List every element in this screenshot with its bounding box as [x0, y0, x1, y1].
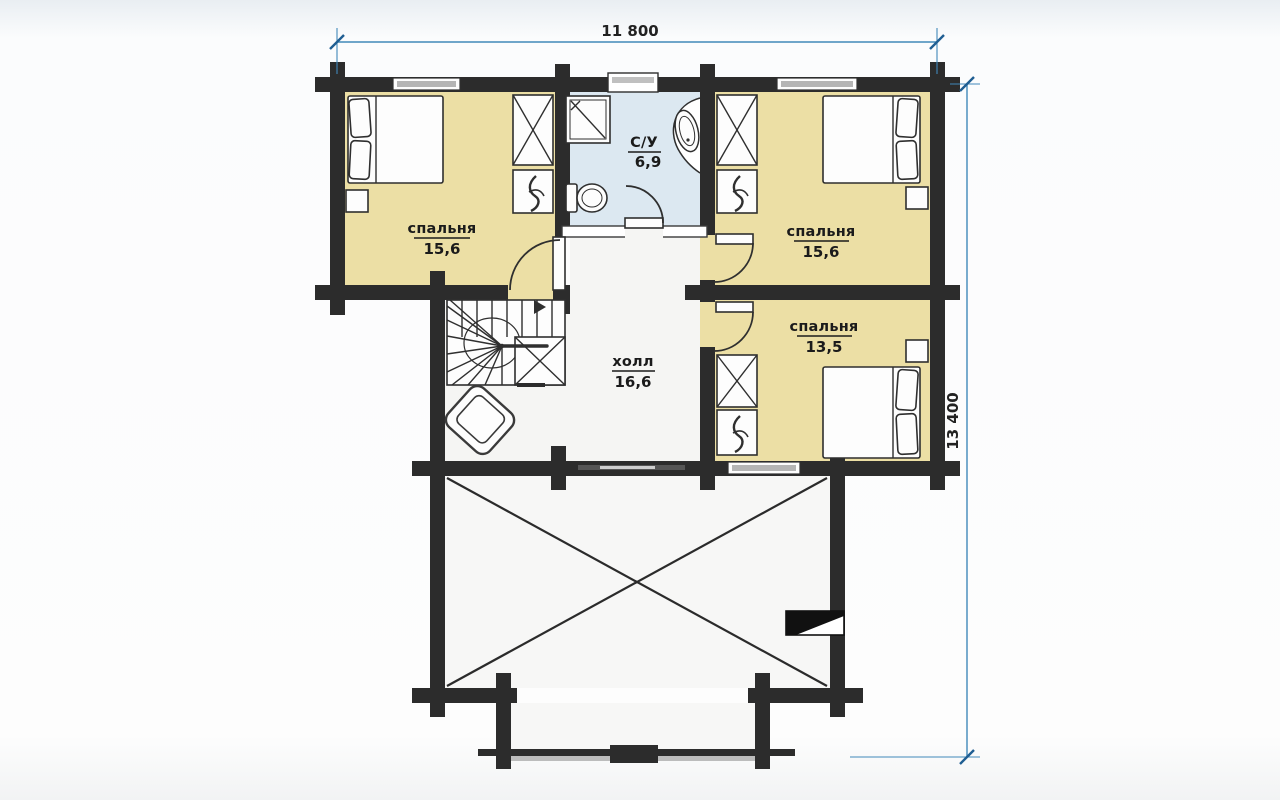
- log-joint: [945, 461, 960, 476]
- log-joint: [845, 688, 863, 703]
- doorway-floor: [700, 302, 715, 347]
- wardrobe: [717, 95, 757, 165]
- door-leaf: [716, 302, 753, 312]
- log-joint: [430, 703, 445, 717]
- wall-segment: [700, 347, 715, 476]
- room-area: 15,6: [423, 240, 460, 258]
- room-area: 15,6: [802, 243, 839, 261]
- wall-segment: [930, 77, 945, 476]
- room-area: 6,9: [635, 153, 662, 171]
- nightstand: [906, 187, 928, 209]
- pillow: [349, 141, 371, 180]
- dimension-value: 11 800: [601, 22, 658, 40]
- toilet: [566, 184, 607, 212]
- log-joint: [755, 673, 770, 688]
- stair-newel: [500, 344, 504, 348]
- wall-segment: [700, 285, 945, 300]
- log-joint: [551, 446, 566, 461]
- wall-segment: [830, 461, 845, 703]
- wardrobe: [513, 95, 553, 165]
- shower: [566, 96, 610, 143]
- log-joint: [430, 271, 445, 285]
- wall-segment: [330, 285, 508, 300]
- wall-segment: [430, 461, 945, 476]
- floor-plan-page: спальня 15,6 С/У 6,9 спальня 15,6 спальн…: [0, 0, 1280, 800]
- window: [578, 465, 685, 470]
- log-joint: [412, 461, 430, 476]
- dimension-value: 13 400: [944, 392, 962, 449]
- doorway-floor: [508, 285, 553, 300]
- log-joint: [315, 285, 330, 300]
- log-joint: [496, 673, 511, 688]
- room-name: спальня: [408, 221, 477, 237]
- wall-segment: [330, 77, 345, 300]
- wall-segment: [700, 77, 715, 235]
- balcony-post: [755, 688, 770, 769]
- log-joint: [830, 703, 845, 717]
- room-name: С/У: [630, 135, 658, 151]
- chair: [717, 170, 757, 213]
- log-joint: [551, 476, 566, 490]
- staircase: [447, 300, 565, 387]
- log-joint: [412, 688, 430, 703]
- log-joint: [685, 285, 700, 300]
- room-name: спальня: [787, 224, 856, 240]
- room-name: холл: [612, 354, 653, 370]
- window: [608, 73, 658, 92]
- wardrobe: [717, 355, 757, 407]
- window: [728, 462, 800, 474]
- nightstand: [346, 190, 368, 212]
- log-joint: [315, 77, 330, 92]
- log-joint: [555, 64, 570, 77]
- doorway-floor: [700, 235, 715, 280]
- log-joint: [930, 476, 945, 490]
- window: [393, 78, 460, 90]
- door-leaf: [716, 234, 753, 244]
- nightstand: [906, 340, 928, 362]
- pillow: [896, 98, 919, 137]
- balcony-post: [496, 688, 511, 769]
- wall-segment: [430, 285, 445, 703]
- log-joint: [945, 285, 960, 300]
- floor-plan-drawing: спальня 15,6 С/У 6,9 спальня 15,6 спальн…: [0, 0, 1280, 800]
- room-area: 13,5: [805, 338, 842, 356]
- door-leaf: [553, 237, 565, 290]
- stair-tread-edge: [517, 383, 545, 387]
- pillow: [349, 98, 372, 137]
- door-leaf: [625, 218, 663, 228]
- room-area: 16,6: [614, 373, 651, 391]
- balcony-rail-center: [610, 745, 658, 763]
- log-joint: [700, 64, 715, 77]
- dimension-top: 11 800: [330, 22, 944, 74]
- window: [777, 78, 857, 90]
- log-joint: [700, 476, 715, 490]
- pillow: [896, 141, 918, 180]
- direction-flag-icon: [786, 611, 844, 635]
- log-joint: [330, 300, 345, 315]
- stairwell-void: [515, 337, 565, 385]
- chair: [513, 170, 553, 213]
- room-label-hall: холл 16,6: [612, 354, 655, 391]
- chair: [717, 410, 757, 455]
- room-name: спальня: [790, 319, 859, 335]
- pillow: [896, 414, 918, 455]
- pillow: [896, 369, 919, 410]
- balcony-floor: [511, 703, 755, 749]
